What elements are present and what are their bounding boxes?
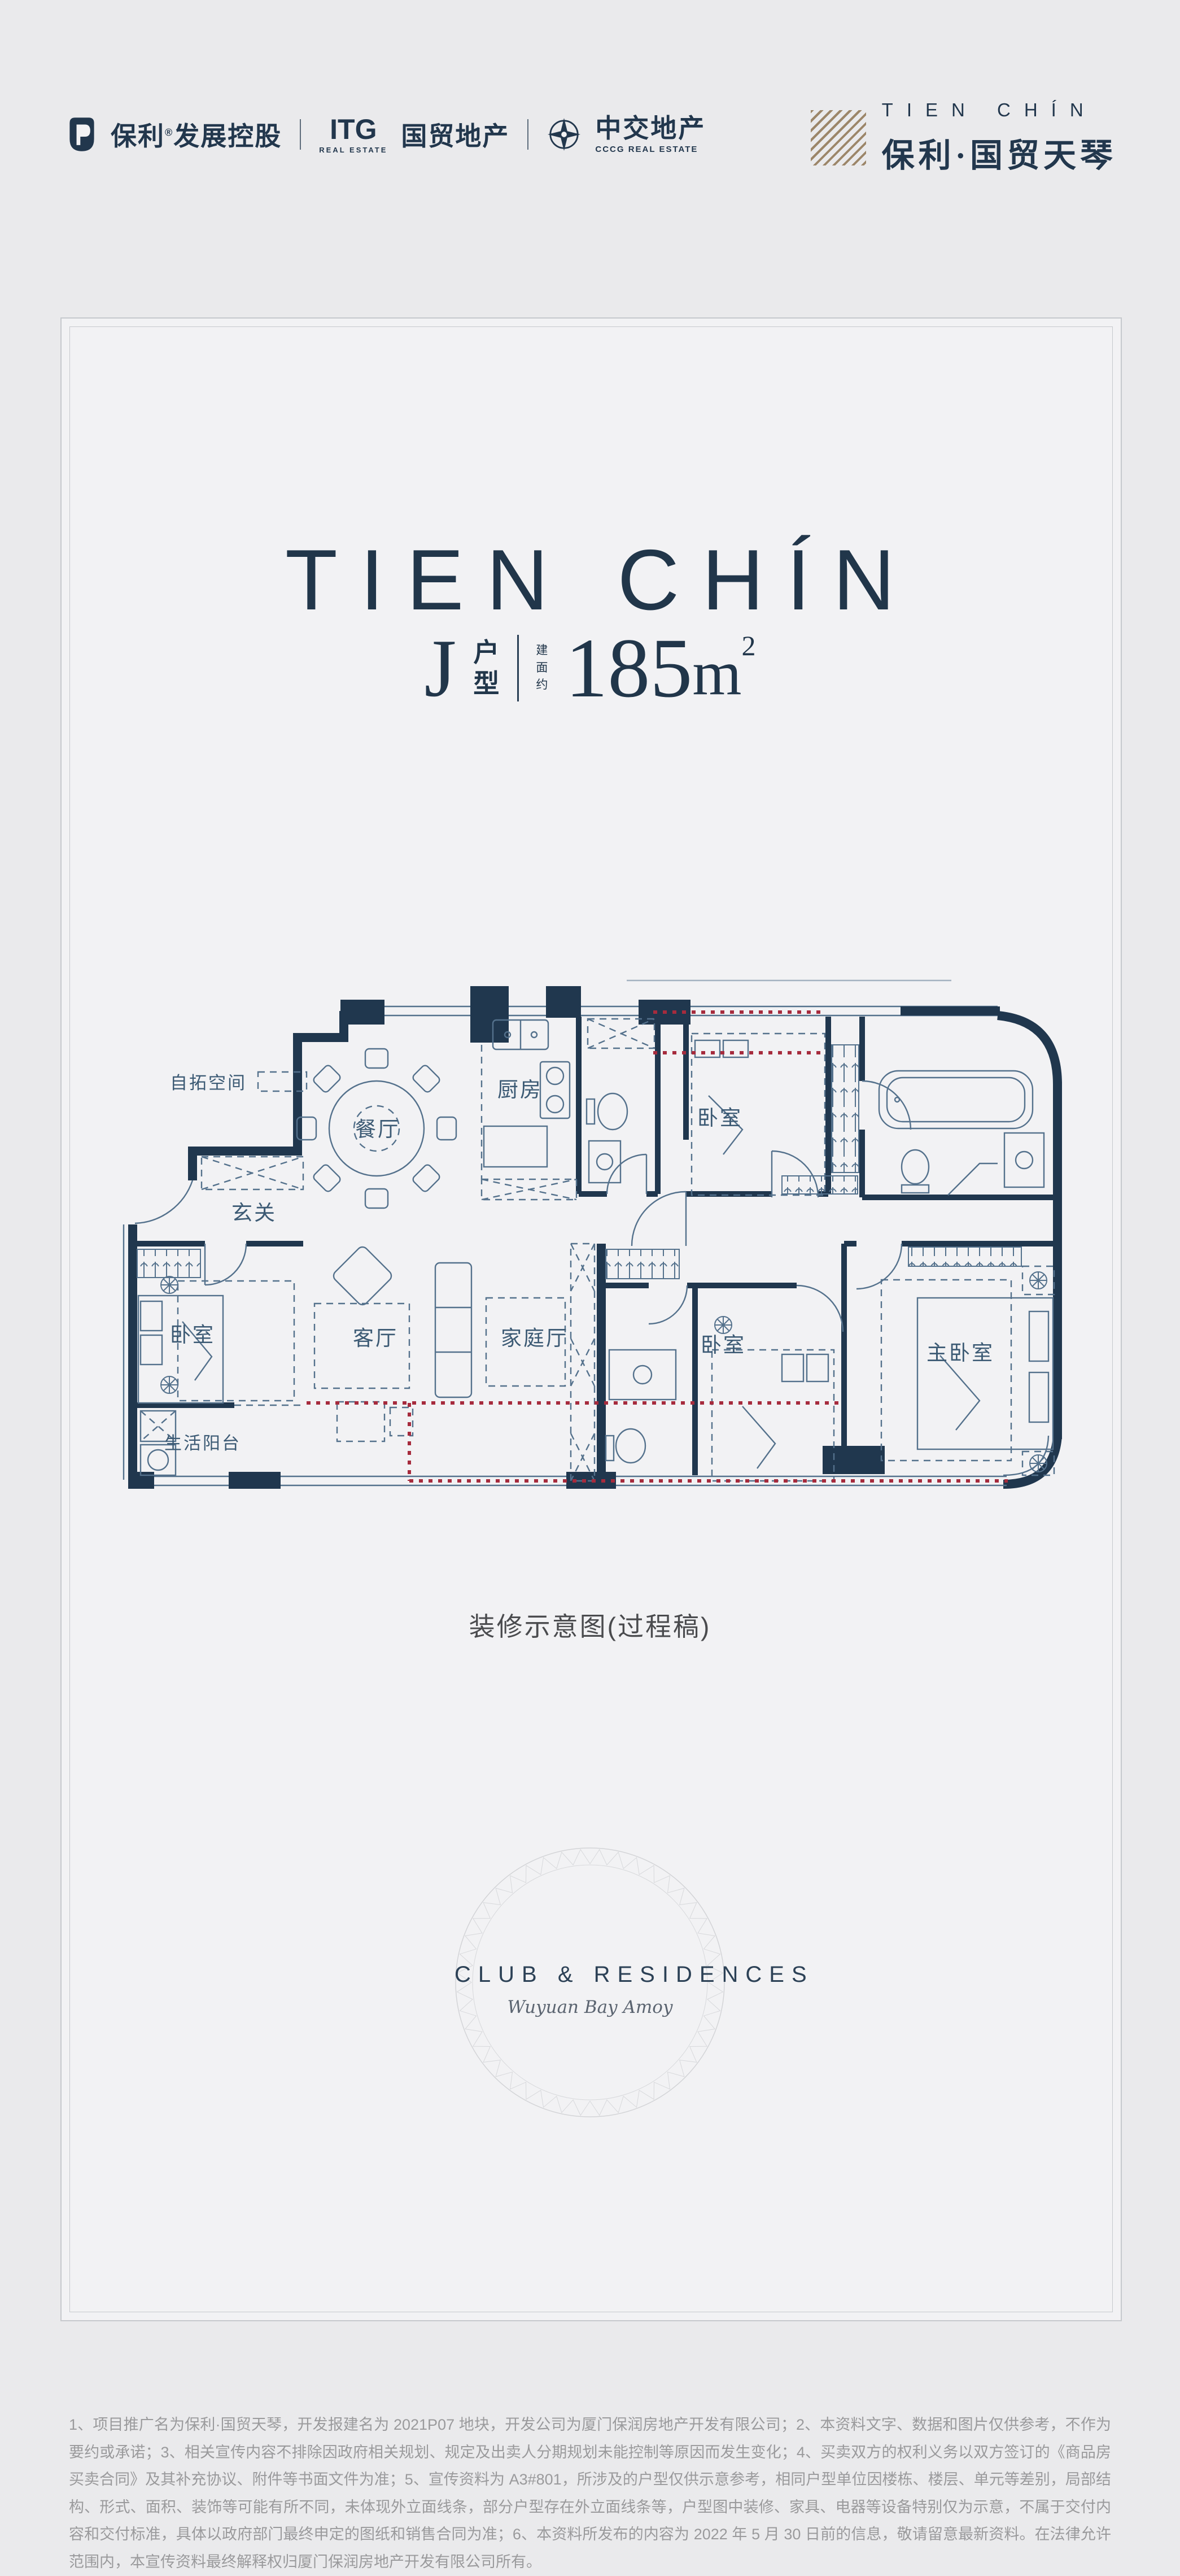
developer-logo-row: 保利®发展控股 ITG REAL ESTATE 国贸地产 中交地产 CCCG R… — [67, 115, 706, 154]
legal-disclaimer: 1、项目推广名为保利·国贸天琴，开发报建名为 2021P07 地块，开发公司为厦… — [69, 2411, 1111, 2576]
cccg-en-name: CCCG REAL ESTATE — [595, 145, 706, 154]
cccg-compass-icon — [547, 117, 582, 152]
room-label-kitchen: 厨房 — [497, 1078, 543, 1101]
floor-plan: 自拓空间 玄关 餐厅 厨房 卧室 卧室 生活阳台 客厅 家庭厅 卧室 主卧室 — [116, 960, 1064, 1519]
page-title: TIEN CHÍN — [0, 531, 1180, 630]
logo-divider — [300, 119, 301, 150]
room-label-family-room: 家庭厅 — [501, 1327, 569, 1350]
room-label-bedroom-2: 卧室 — [697, 1106, 742, 1130]
emblem-script: Wuyuan Bay Amoy — [454, 1997, 726, 2017]
itg-logo: ITG REAL ESTATE — [319, 115, 387, 154]
area-exponent: 2 — [741, 631, 755, 660]
area-unit: m — [692, 642, 741, 705]
itg-cn-name: 国贸地产 — [401, 116, 509, 153]
room-label-expand-space: 自拓空间 — [170, 1073, 247, 1093]
club-emblem: CLUB & RESIDENCES Wuyuan Bay Amoy — [454, 1847, 726, 2118]
unit-info: J 户型 建面约 185 m 2 — [0, 626, 1180, 711]
furniture — [137, 1019, 1054, 1481]
logo-divider — [527, 119, 528, 150]
area-value: 185 m 2 — [565, 626, 755, 711]
room-label-foyer: 玄关 — [231, 1201, 277, 1224]
hatch-square-icon — [811, 110, 866, 165]
registered-mark: ® — [165, 127, 173, 138]
poly-logo-text: 保利®发展控股 — [111, 116, 282, 153]
area-number: 185 — [565, 626, 692, 711]
emblem-title: CLUB & RESIDENCES — [454, 1962, 726, 1987]
itg-sub: REAL ESTATE — [319, 146, 387, 154]
cccg-cn-name: 中交地产 — [595, 115, 706, 141]
room-label-bedroom-3: 卧室 — [701, 1333, 746, 1357]
room-label-living: 客厅 — [353, 1327, 398, 1350]
room-label-dining: 餐厅 — [355, 1118, 400, 1141]
cccg-logo-text: 中交地产 CCCG REAL ESTATE — [595, 115, 706, 154]
brand-en: TIEN CHÍN — [882, 99, 1117, 121]
unit-letter: J — [425, 627, 457, 709]
plan-caption: 装修示意图(过程稿) — [0, 1606, 1180, 1644]
area-note: 建面约 — [536, 642, 548, 694]
unit-divider — [517, 635, 519, 701]
poly-logo-icon — [67, 117, 97, 151]
poster: { "header": { "poly_group": {"brand": "保… — [0, 0, 1180, 2555]
unit-type-label: 户型 — [473, 637, 500, 699]
room-label-utility-balcony: 生活阳台 — [164, 1433, 241, 1453]
itg-acronym: ITG — [330, 115, 377, 143]
project-brand: TIEN CHÍN 保利·国贸天琴 — [811, 99, 1117, 176]
room-label-master-bedroom: 主卧室 — [926, 1341, 994, 1365]
room-label-bedroom-1: 卧室 — [170, 1323, 215, 1346]
brand-cn: 保利·国贸天琴 — [882, 129, 1117, 176]
